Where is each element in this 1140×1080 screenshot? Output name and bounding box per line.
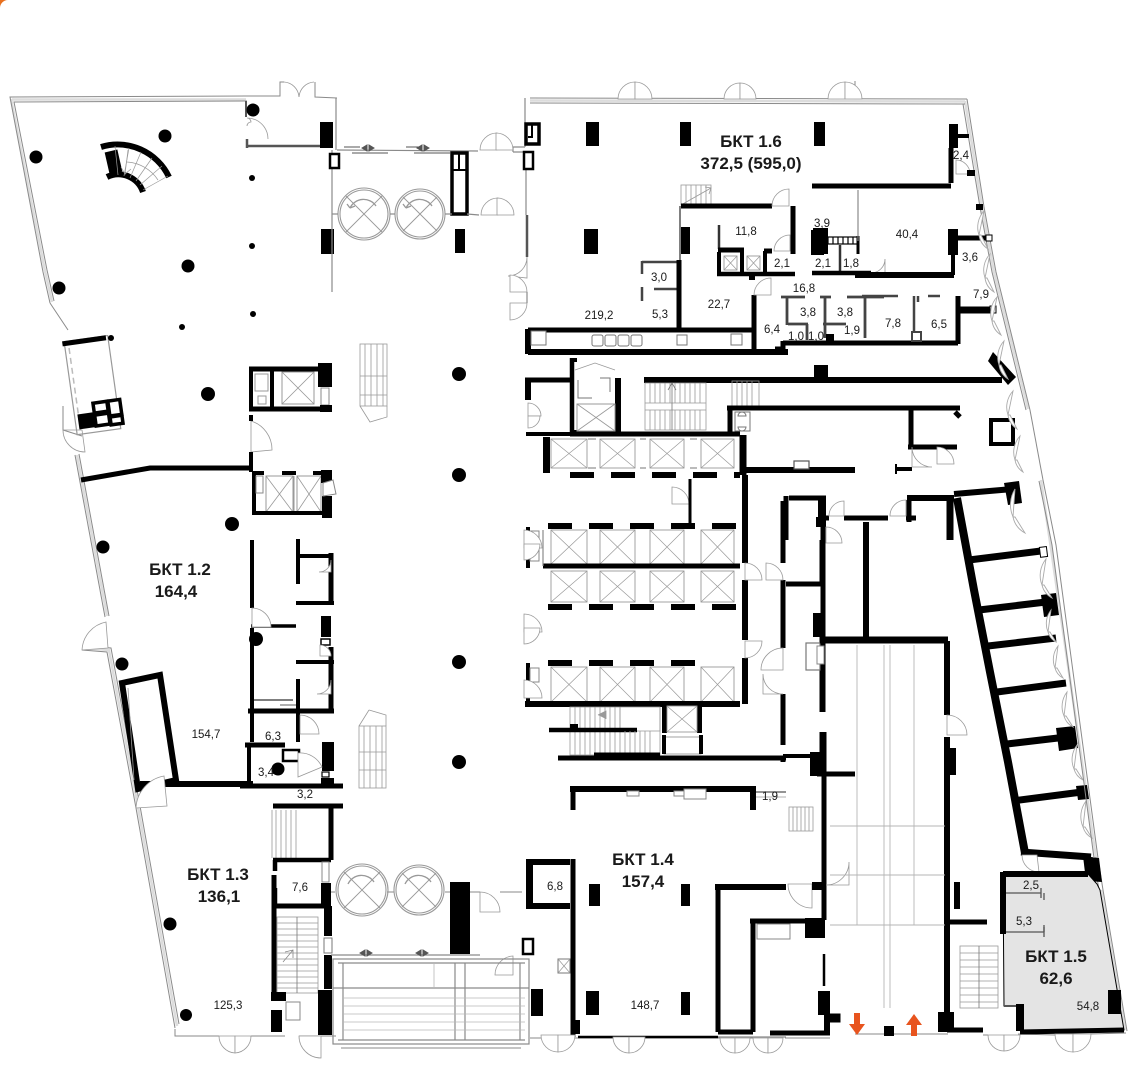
svg-text:372,5 (595,0): 372,5 (595,0) xyxy=(700,154,801,173)
svg-text:1,9: 1,9 xyxy=(844,325,860,337)
svg-text:6,8: 6,8 xyxy=(547,881,563,893)
svg-text:5,3: 5,3 xyxy=(652,309,668,321)
svg-text:2,4: 2,4 xyxy=(953,150,970,162)
svg-text:3,4: 3,4 xyxy=(258,767,275,779)
svg-text:164,4: 164,4 xyxy=(155,582,198,601)
svg-text:6,4: 6,4 xyxy=(764,324,781,336)
svg-text:136,1: 136,1 xyxy=(198,887,241,906)
svg-text:16,8: 16,8 xyxy=(793,283,815,295)
svg-text:219,2: 219,2 xyxy=(585,310,614,322)
svg-text:БКТ 1.5: БКТ 1.5 xyxy=(1025,947,1087,966)
svg-text:БКТ 1.2: БКТ 1.2 xyxy=(149,560,211,579)
svg-text:5,3: 5,3 xyxy=(1016,916,1032,928)
svg-text:7,6: 7,6 xyxy=(292,882,308,894)
svg-text:7,9: 7,9 xyxy=(973,289,989,301)
svg-text:2,1: 2,1 xyxy=(774,258,790,270)
svg-text:154,7: 154,7 xyxy=(192,729,221,741)
svg-text:6,5: 6,5 xyxy=(931,319,947,331)
svg-text:3,8: 3,8 xyxy=(800,307,816,319)
svg-text:БКТ 1.3: БКТ 1.3 xyxy=(187,865,249,884)
svg-text:1,8: 1,8 xyxy=(843,258,859,270)
svg-text:148,7: 148,7 xyxy=(631,1000,660,1012)
svg-text:157,4: 157,4 xyxy=(622,872,665,891)
svg-text:22,7: 22,7 xyxy=(708,299,730,311)
svg-text:1,9: 1,9 xyxy=(762,791,778,803)
svg-text:БКТ 1.4: БКТ 1.4 xyxy=(612,850,674,869)
svg-text:62,6: 62,6 xyxy=(1039,969,1072,988)
svg-text:2,1: 2,1 xyxy=(815,258,831,270)
svg-text:3,6: 3,6 xyxy=(962,252,978,264)
svg-text:11,8: 11,8 xyxy=(735,226,757,238)
svg-text:БКТ 1.6: БКТ 1.6 xyxy=(720,132,782,151)
svg-text:7,8: 7,8 xyxy=(885,318,901,330)
svg-text:3,8: 3,8 xyxy=(837,307,853,319)
svg-text:54,8: 54,8 xyxy=(1077,1001,1099,1013)
svg-text:40,4: 40,4 xyxy=(896,229,919,241)
svg-text:2,5: 2,5 xyxy=(1023,880,1039,892)
svg-text:3,0: 3,0 xyxy=(651,272,667,284)
svg-text:125,3: 125,3 xyxy=(214,1000,243,1012)
svg-text:6,3: 6,3 xyxy=(265,731,281,743)
svg-text:3,2: 3,2 xyxy=(297,789,313,801)
